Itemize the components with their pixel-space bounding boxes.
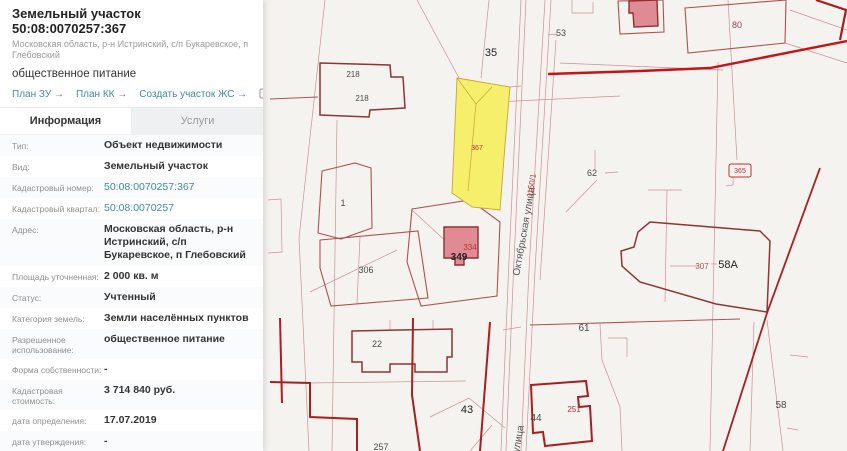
row-label: дата определения: xyxy=(12,414,104,426)
table-row: Форма собственности: - xyxy=(0,359,263,380)
map-label-367: 367 xyxy=(471,145,483,152)
map-label-35: 35 xyxy=(485,47,497,59)
row-label: Кадастровая стоимость: xyxy=(12,384,104,406)
row-label: Форма собственности: xyxy=(12,363,104,375)
table-row: Статус: Учтенный xyxy=(0,287,263,308)
row-label: Кадастровый номер: xyxy=(12,181,104,193)
map-label-Октябрьская улица: Октябрьская улица xyxy=(510,186,537,277)
map-label-334: 334 xyxy=(463,243,477,252)
row-value: Московская область, р-н Истринский, с/п … xyxy=(104,223,251,262)
attribute-rows: Тип: Объект недвижимости Вид: Земельный … xyxy=(0,134,263,451)
map-label-218: 218 xyxy=(346,70,360,79)
row-value: - xyxy=(104,435,251,448)
map-label-58: 58 xyxy=(775,400,787,411)
map-label-1: 1 xyxy=(340,198,345,208)
tab-информация[interactable]: Информация xyxy=(0,108,132,134)
quarter-boundary-line xyxy=(548,41,847,74)
row-value: Учтенный xyxy=(104,291,251,304)
parcel-outlines xyxy=(270,0,786,325)
map-label-58А: 58А xyxy=(718,259,738,271)
map-label-22: 22 xyxy=(372,339,382,349)
table-row: Адрес: Московская область, р-н Истрински… xyxy=(0,219,263,266)
map-label-44: 44 xyxy=(530,413,542,424)
map-label-251: 251 xyxy=(567,405,581,414)
action-link-0[interactable]: План ЗУ → xyxy=(12,89,64,100)
row-value: - xyxy=(104,363,251,376)
row-value: 3 714 840 руб. xyxy=(104,384,251,397)
action-link-2[interactable]: Создать участок ЖС → xyxy=(139,89,247,100)
table-row: дата утверждения: - xyxy=(0,431,263,451)
row-value: Земли населённых пунктов xyxy=(104,312,251,325)
map-label-80: 80 xyxy=(732,20,742,30)
map-label-306: 306 xyxy=(358,265,373,275)
info-panel: Земельный участок 50:08:0070257:367 Моск… xyxy=(0,0,263,451)
map-label-61: 61 xyxy=(578,323,590,334)
row-label: Разрешенное использование: xyxy=(12,333,104,355)
row-label: Кадастровый квартал: xyxy=(12,202,104,214)
map-label-349: 349 xyxy=(451,252,468,263)
building-top-right xyxy=(629,0,658,27)
row-label: Вид: xyxy=(12,160,104,172)
map-label-62: 62 xyxy=(587,168,597,178)
map-labels: 21821835538036713063343496236530758А6122… xyxy=(340,20,787,451)
table-row: Тип: Объект недвижимости xyxy=(0,135,263,156)
panel-header: Земельный участок 50:08:0070257:367 Моск… xyxy=(0,0,263,107)
action-links: План ЗУ →План КК →Создать участок ЖС → xyxy=(12,87,251,107)
table-row: Категория земель: Земли населённых пункт… xyxy=(0,308,263,329)
row-label: Тип: xyxy=(12,139,104,151)
table-row: Кадастровый номер: 50:08:0070257:367 xyxy=(0,177,263,198)
row-label: дата утверждения: xyxy=(12,435,104,447)
map-label-53: 53 xyxy=(556,28,566,38)
page-title: Земельный участок 50:08:0070257:367 xyxy=(12,6,251,36)
map-label-Октябрьская улица: Октябрьская улица xyxy=(499,424,526,451)
address-subtitle: Московская область, р-н Истринский, с/п … xyxy=(12,39,251,61)
row-label: Адрес: xyxy=(12,223,104,235)
row-value: Объект недвижимости xyxy=(104,139,251,152)
table-row: Площадь уточненная: 2 000 кв. м xyxy=(0,266,263,287)
row-value: общественное питание xyxy=(104,333,251,346)
cadastral-number-link[interactable]: 50:08:0070257 xyxy=(104,202,251,215)
row-label: Статус: xyxy=(12,291,104,303)
row-label: Категория земель: xyxy=(12,312,104,324)
table-row: дата определения: 17.07.2019 xyxy=(0,410,263,431)
cadastral-map-app: 21821835538036713063343496236530758А6122… xyxy=(0,0,847,451)
table-row: Вид: Земельный участок xyxy=(0,156,263,177)
permitted-use-text: общественное питание xyxy=(12,68,251,80)
map-label-257: 257 xyxy=(373,442,388,451)
map-label-43: 43 xyxy=(461,404,473,416)
map-label-365: 365 xyxy=(734,168,746,175)
parcel-outlines-dark xyxy=(320,63,770,372)
row-label: Площадь уточненная: xyxy=(12,270,104,282)
tab-bar: ИнформацияУслуги xyxy=(0,107,263,134)
action-link-1[interactable]: План КК → xyxy=(76,89,127,100)
row-value: 2 000 кв. м xyxy=(104,270,251,283)
map-label-307: 307 xyxy=(695,262,709,271)
locate-on-map-icon[interactable] xyxy=(259,87,263,101)
table-row: Кадастровый квартал: 50:08:0070257 xyxy=(0,198,263,219)
selected-parcel-367[interactable] xyxy=(452,78,510,210)
map-label-218: 218 xyxy=(355,94,369,103)
tab-услуги[interactable]: Услуги xyxy=(132,108,263,134)
row-value: Земельный участок xyxy=(104,160,251,173)
cadastral-number-link[interactable]: 50:08:0070257:367 xyxy=(104,181,251,194)
table-row: Кадастровая стоимость: 3 714 840 руб. xyxy=(0,380,263,410)
row-value: 17.07.2019 xyxy=(104,414,251,427)
bold-boundaries xyxy=(270,0,846,451)
table-row: Разрешенное использование: общественное … xyxy=(0,329,263,359)
